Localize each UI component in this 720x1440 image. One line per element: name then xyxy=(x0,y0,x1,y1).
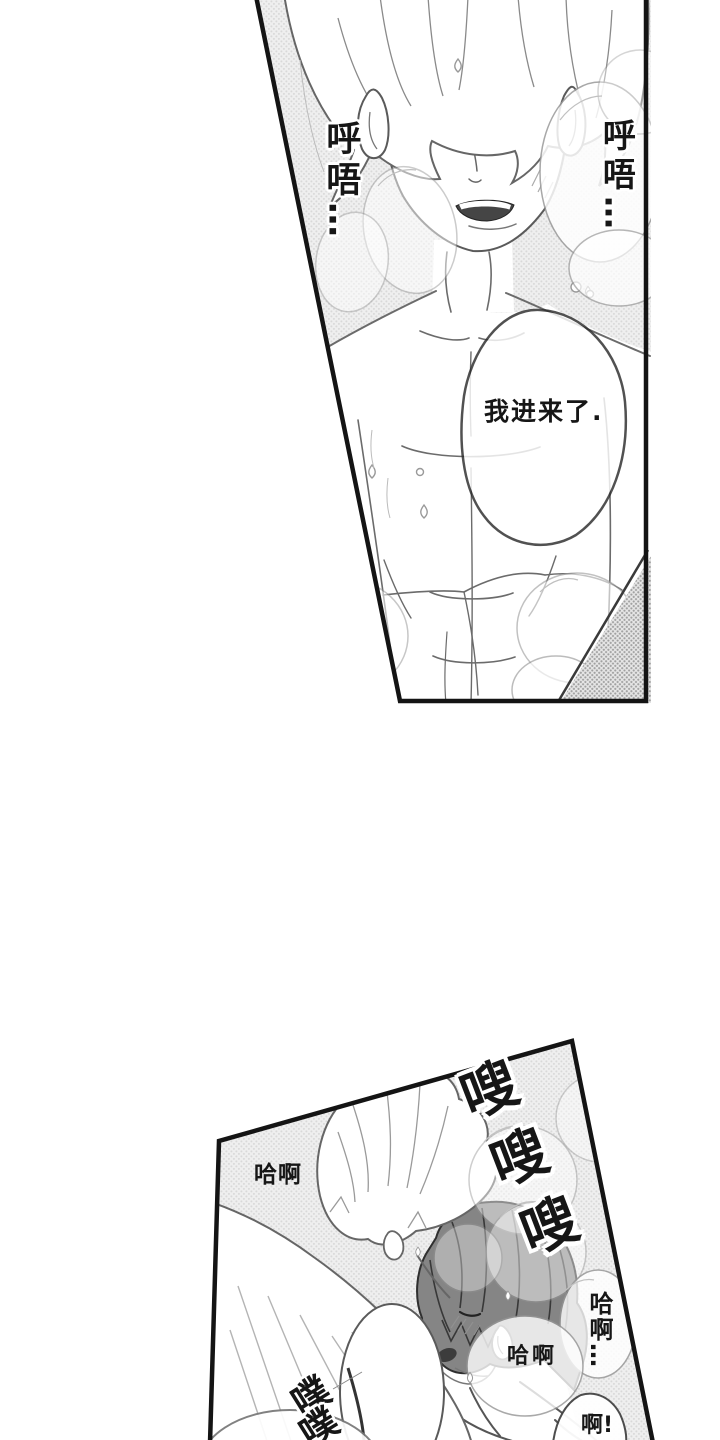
sfx-breath-top-right: 呼唔… xyxy=(599,118,633,235)
manga-page: 呼唔… 呼唔… 我进来了. 哈啊 嗖 嗖 嗖 哈啊… 哈啊 啊! 噗 噗 xyxy=(0,0,720,1440)
speech-bubble xyxy=(461,310,625,545)
top-panel-art xyxy=(250,0,682,724)
exclaim-text: 啊! xyxy=(581,1415,613,1438)
breath-text-right: 哈啊… xyxy=(586,1291,611,1369)
ear-blond xyxy=(384,1231,404,1259)
bottom-panel-art xyxy=(198,1039,657,1440)
breath-text-center: 哈啊 xyxy=(507,1346,557,1369)
breath-text-upper-left: 哈啊 xyxy=(254,1164,302,1188)
sfx-breath-top-left: 呼唔… xyxy=(322,120,358,243)
speech-text: 我进来了. xyxy=(484,399,604,425)
